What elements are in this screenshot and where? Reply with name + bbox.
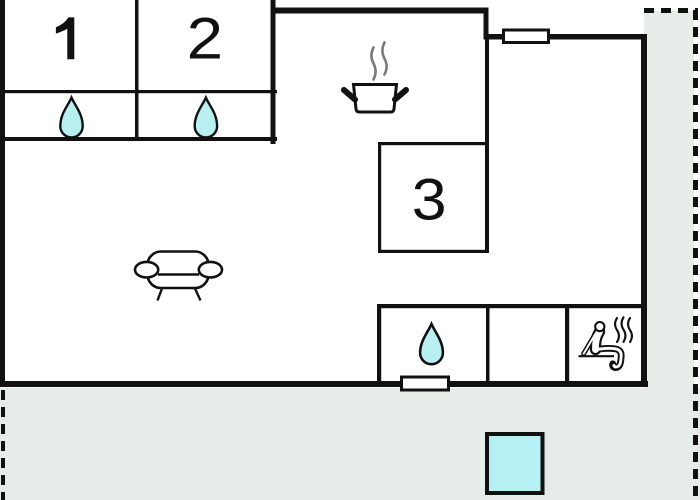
svg-text:2: 2 (187, 7, 223, 72)
svg-text:3: 3 (412, 167, 447, 232)
